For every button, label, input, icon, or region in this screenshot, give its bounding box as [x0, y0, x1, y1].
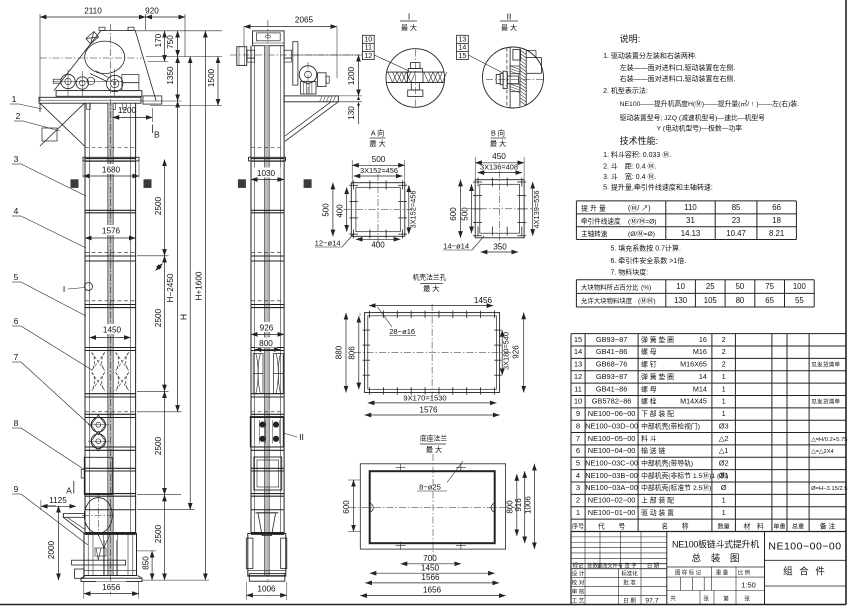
svg-text:2: 2: [16, 111, 21, 121]
svg-text:张: 张: [744, 595, 750, 603]
svg-text:1: 1: [722, 397, 726, 406]
svg-text:66: 66: [772, 203, 781, 212]
svg-text:(ⓂⓂ): (ⓂⓂ): [638, 297, 656, 305]
svg-text:GB93−87: GB93−87: [596, 335, 627, 344]
svg-text:1: 1: [722, 508, 726, 517]
svg-text:H+1600: H+1600: [195, 271, 204, 300]
svg-text:450: 450: [492, 152, 506, 161]
svg-text:NE100−03C−00: NE100−03C−00: [585, 459, 638, 468]
svg-text:1006: 1006: [257, 585, 276, 594]
svg-text:名 称: 名 称: [661, 521, 688, 530]
svg-text:1: 1: [722, 496, 726, 505]
svg-text:10.47: 10.47: [726, 229, 746, 238]
svg-text:12−ø14: 12−ø14: [315, 239, 341, 248]
svg-text:最 大: 最 大: [369, 139, 385, 148]
svg-text:GB41−86: GB41−86: [596, 347, 627, 356]
svg-text:输 送 链: 输 送 链: [641, 446, 665, 455]
svg-text:1450: 1450: [103, 326, 122, 335]
svg-text:II: II: [507, 12, 512, 22]
svg-text:2: 2: [722, 360, 726, 369]
svg-text:7. 物料块度:: 7. 物料块度:: [611, 268, 649, 277]
svg-text:9: 9: [576, 409, 580, 418]
svg-text:2110: 2110: [84, 7, 102, 16]
svg-text:1350: 1350: [166, 66, 175, 85]
svg-text:△=H/0.2+5.75: △=H/0.2+5.75: [811, 437, 847, 443]
svg-text:7: 7: [14, 352, 19, 362]
svg-text:Ø3: Ø3: [719, 421, 729, 430]
svg-text:9X170=1530: 9X170=1530: [403, 393, 446, 402]
svg-text:400: 400: [335, 204, 344, 218]
svg-text:2500: 2500: [154, 436, 163, 455]
svg-text:1: 1: [722, 384, 726, 393]
svg-text:3X152=456: 3X152=456: [360, 166, 398, 175]
svg-text:1. 驱动装置分左装和右装两种.: 1. 驱动装置分左装和右装两种.: [603, 51, 697, 60]
svg-text:400: 400: [371, 241, 385, 250]
svg-text:备 注: 备 注: [820, 521, 836, 530]
svg-text:Ø=H−3.15/2.5: Ø=H−3.15/2.5: [811, 486, 847, 492]
svg-text:5: 5: [576, 459, 580, 468]
svg-text:弹 簧 垫 圈: 弹 簧 垫 圈: [641, 335, 674, 344]
svg-text:NE100板链斗式提升机: NE100板链斗式提升机: [672, 539, 759, 550]
svg-text:1. 料斗容积: 0.033 Ⓜ.: 1. 料斗容积: 0.033 Ⓜ.: [603, 150, 671, 159]
svg-text:1200: 1200: [118, 106, 137, 115]
svg-text:2: 2: [576, 496, 580, 505]
svg-text:2. 斗 距: 0.4 Ⓜ.: 2. 斗 距: 0.4 Ⓜ.: [603, 163, 656, 171]
svg-text:800: 800: [259, 339, 273, 348]
svg-text:最 大: 最 大: [490, 139, 506, 148]
svg-text:NE100−04−00: NE100−04−00: [588, 446, 636, 455]
svg-text:螺 栓: 螺 栓: [641, 397, 657, 406]
svg-text:55: 55: [795, 296, 804, 305]
svg-text:最 大: 最 大: [401, 23, 417, 32]
svg-text:(%): (%): [641, 284, 651, 291]
svg-text:最 大: 最 大: [423, 284, 439, 293]
svg-text:上 部 装 配: 上 部 装 配: [641, 496, 674, 505]
svg-text:批 准: 批 准: [623, 579, 636, 587]
svg-text:2500: 2500: [154, 524, 163, 543]
svg-text:中部机壳(带导轨): 中部机壳(带导轨): [641, 459, 693, 468]
svg-text:NE100−00−00: NE100−00−00: [768, 541, 841, 553]
svg-text:总重: 总重: [792, 522, 804, 530]
svg-text:底座法兰: 底座法兰: [420, 434, 447, 443]
svg-text:3X152=456: 3X152=456: [409, 190, 418, 228]
svg-text:850: 850: [142, 556, 151, 570]
svg-text:标准化: 标准化: [621, 570, 638, 578]
svg-text:NE100−03A−00: NE100−03A−00: [585, 483, 638, 492]
svg-text:6: 6: [576, 446, 580, 455]
svg-text:数量: 数量: [717, 522, 729, 530]
svg-text:I: I: [408, 12, 410, 22]
svg-text:M16: M16: [693, 347, 707, 356]
svg-text:31: 31: [686, 216, 695, 225]
svg-text:料 斗: 料 斗: [641, 434, 657, 443]
svg-text:螺 母: 螺 母: [641, 347, 657, 356]
svg-text:Ø1: Ø1: [719, 471, 729, 480]
svg-text:1576: 1576: [102, 227, 121, 236]
svg-text:NE100−03D−00: NE100−03D−00: [585, 421, 638, 430]
svg-text:大块物料所占百分比: 大块物料所占百分比: [581, 282, 639, 291]
svg-text:NE100−03B−00: NE100−03B−00: [585, 471, 638, 480]
svg-text:11: 11: [574, 384, 582, 393]
svg-text:4: 4: [14, 206, 19, 216]
svg-text:GB93−87: GB93−87: [596, 372, 627, 381]
svg-text:1: 1: [576, 508, 580, 517]
svg-text:材 料: 材 料: [743, 521, 764, 530]
svg-text:弹 簧 垫 圈: 弹 簧 垫 圈: [641, 372, 674, 381]
svg-text:4X139=556: 4X139=556: [532, 190, 541, 228]
svg-text:NE100——提升机高度H(Ⓜ)——提升量(㎥/ ↑ ): NE100——提升机高度H(Ⓜ)——提升量(㎥/ ↑ )——左(右)装.: [620, 99, 799, 108]
svg-text:GB68−76: GB68−76: [596, 360, 627, 369]
svg-text:M14: M14: [693, 384, 707, 393]
svg-text:图 样 标 记: 图 样 标 记: [675, 569, 702, 577]
svg-text:△=△2X4: △=△2X4: [811, 449, 834, 455]
svg-text:见发货清单: 见发货清单: [811, 398, 840, 406]
svg-text:130: 130: [347, 106, 356, 120]
svg-text:28−ø16: 28−ø16: [389, 327, 415, 336]
svg-text:1450: 1450: [421, 563, 440, 572]
svg-text:工 艺: 工 艺: [572, 598, 585, 605]
svg-text:单重: 单重: [773, 522, 785, 530]
svg-text:NE100−01−00: NE100−01−00: [588, 508, 636, 517]
svg-text:105: 105: [704, 296, 718, 305]
svg-text:△2: △2: [719, 434, 729, 443]
svg-text:组 合 件: 组 合 件: [783, 566, 827, 578]
svg-text:350: 350: [493, 243, 507, 252]
svg-text:II: II: [299, 432, 304, 442]
svg-text:H: H: [178, 314, 188, 320]
svg-text:10: 10: [574, 397, 582, 406]
svg-text:130: 130: [674, 296, 688, 305]
svg-text:技术性能:: 技术性能:: [620, 135, 659, 146]
svg-text:第: 第: [723, 595, 729, 603]
svg-text:(Ⓜ/Ⓜ=Ø): (Ⓜ/Ⓜ=Ø): [628, 218, 656, 226]
svg-text:5. 填充系数按 0.7计算.: 5. 填充系数按 0.7计算.: [611, 244, 681, 253]
svg-text:M16X65: M16X65: [680, 360, 707, 369]
svg-text:8: 8: [14, 418, 19, 428]
svg-text:1:50: 1:50: [741, 581, 756, 590]
svg-text:80: 80: [736, 296, 745, 305]
svg-text:4: 4: [576, 471, 580, 480]
svg-text:100: 100: [793, 282, 807, 291]
svg-text:700: 700: [423, 554, 437, 563]
svg-text:926: 926: [260, 324, 274, 333]
svg-text:8−ø25: 8−ø25: [419, 483, 441, 492]
svg-text:总 装 图: 总 装 图: [692, 553, 740, 565]
svg-text:1200: 1200: [347, 66, 356, 85]
svg-text:25: 25: [706, 282, 715, 291]
svg-text:中部机壳(带检视门): 中部机壳(带检视门): [641, 421, 700, 430]
svg-text:Ø: Ø: [721, 483, 727, 492]
svg-text:驱 动 装 置: 驱 动 装 置: [641, 508, 674, 517]
svg-text:螺 母: 螺 母: [641, 384, 657, 393]
svg-text:B: B: [154, 130, 160, 140]
svg-text:右装——面对进料口,驱动装置在右侧.: 右装——面对进料口,驱动装置在右侧.: [620, 74, 736, 83]
svg-text:Y (电动机型号)—极数—功率: Y (电动机型号)—极数—功率: [657, 124, 743, 133]
svg-text:14−ø14: 14−ø14: [443, 242, 469, 251]
svg-text:2065: 2065: [295, 16, 314, 25]
svg-text:110: 110: [684, 203, 697, 212]
svg-text:2: 2: [722, 347, 726, 356]
svg-text:NE100−06−00: NE100−06−00: [588, 409, 636, 418]
svg-text:共: 共: [670, 595, 676, 603]
svg-text:H−2450: H−2450: [166, 273, 175, 302]
svg-text:GB41−86: GB41−86: [596, 384, 627, 393]
svg-text:14: 14: [699, 372, 707, 381]
svg-text:机壳法兰孔: 机壳法兰孔: [413, 273, 447, 282]
svg-text:750: 750: [166, 35, 175, 49]
svg-text:提 升 量: 提 升 量: [581, 204, 606, 213]
svg-text:1656: 1656: [423, 586, 442, 595]
svg-text:600: 600: [342, 500, 351, 514]
svg-text:6: 6: [14, 316, 19, 326]
svg-text:500: 500: [460, 207, 469, 221]
svg-text:NE100−02−00: NE100−02−00: [588, 496, 636, 505]
svg-text:日 期: 日 期: [623, 598, 636, 605]
svg-text:600: 600: [449, 207, 458, 221]
svg-text:3: 3: [14, 154, 19, 164]
svg-text:12: 12: [364, 51, 372, 60]
svg-text:8.21: 8.21: [769, 229, 784, 238]
svg-text:1125: 1125: [49, 496, 67, 505]
svg-text:5: 5: [14, 272, 19, 282]
svg-text:800: 800: [505, 500, 514, 514]
svg-text:审 核: 审 核: [572, 588, 585, 596]
svg-text:1656: 1656: [102, 583, 121, 592]
svg-text:GB5782−86: GB5782−86: [592, 397, 632, 406]
svg-text:170: 170: [154, 33, 163, 47]
svg-text:代 号: 代 号: [598, 521, 625, 530]
svg-text:1: 1: [12, 94, 17, 104]
svg-text:中部机壳(非标节 1.5Ⓜ)1 (Ⓜ): 中部机壳(非标节 1.5Ⓜ)1 (Ⓜ): [641, 471, 728, 480]
svg-text:左装——面对进料口,驱动装置在左侧.: 左装——面对进料口,驱动装置在左侧.: [620, 63, 736, 72]
svg-text:设 计: 设 计: [572, 570, 585, 578]
svg-text:14: 14: [574, 347, 582, 356]
svg-text:12: 12: [574, 372, 582, 381]
svg-text:比 例: 比 例: [738, 569, 750, 577]
svg-text:75: 75: [765, 282, 774, 291]
svg-text:NE100−05−00: NE100−05−00: [588, 434, 636, 443]
svg-text:1576: 1576: [419, 405, 438, 414]
svg-text:97.7: 97.7: [645, 598, 658, 605]
svg-text:2500: 2500: [154, 196, 163, 215]
svg-text:2: 2: [722, 335, 726, 344]
svg-text:14.13: 14.13: [681, 229, 701, 238]
svg-text:7: 7: [576, 434, 580, 443]
svg-text:允许大块物料块度: 允许大块物料块度: [581, 296, 633, 305]
svg-text:2. 机型表示法:: 2. 机型表示法:: [603, 86, 648, 95]
svg-text:(Ø/Ⓜ=Ø): (Ø/Ⓜ=Ø): [628, 230, 655, 238]
svg-text:中部机壳(标准节 2.5Ⓜ): 中部机壳(标准节 2.5Ⓜ): [641, 483, 711, 492]
svg-text:重 量: 重 量: [716, 569, 729, 577]
svg-text:张: 张: [703, 595, 709, 603]
svg-text:500: 500: [372, 155, 386, 164]
svg-text:85: 85: [732, 203, 741, 212]
svg-text:806: 806: [347, 346, 356, 360]
svg-text:2000: 2000: [47, 540, 56, 559]
svg-text:B 向: B 向: [491, 129, 505, 138]
svg-text:18: 18: [772, 216, 781, 225]
svg-text:500: 500: [321, 203, 330, 217]
svg-text:说明:: 说明:: [620, 33, 641, 44]
svg-text:I: I: [63, 284, 65, 294]
svg-text:见发货清单: 见发货清单: [811, 361, 840, 369]
svg-text:8: 8: [576, 421, 580, 430]
svg-text:15: 15: [458, 51, 466, 60]
svg-text:2500: 2500: [154, 308, 163, 327]
svg-text:M14X45: M14X45: [680, 397, 707, 406]
svg-text:螺 钉: 螺 钉: [641, 360, 657, 369]
svg-text:15: 15: [574, 335, 582, 344]
svg-text:1: 1: [722, 409, 726, 418]
svg-text:926: 926: [512, 345, 521, 359]
svg-text:下 部 装 配: 下 部 装 配: [641, 409, 674, 418]
svg-text:Ø2: Ø2: [719, 459, 729, 468]
svg-text:3: 3: [576, 483, 580, 492]
svg-text:23: 23: [732, 216, 741, 225]
svg-text:校 对: 校 对: [572, 579, 585, 587]
svg-text:牵引件线速度: 牵引件线速度: [581, 217, 621, 226]
svg-text:880: 880: [335, 345, 344, 359]
svg-text:6. 牵引件安全系数 >1倍.: 6. 牵引件安全系数 >1倍.: [611, 256, 687, 265]
svg-text:1566: 1566: [421, 573, 440, 582]
svg-text:1006: 1006: [524, 496, 533, 514]
svg-text:1030: 1030: [257, 169, 276, 178]
svg-text:最 大: 最 大: [426, 445, 442, 454]
svg-text:3. 斗 宽: 0.4 Ⓜ.: 3. 斗 宽: 0.4 Ⓜ.: [603, 172, 656, 181]
svg-text:驱动装置型号; JZQ (减速机型号)—速比—机型号: 驱动装置型号; JZQ (减速机型号)—速比—机型号: [620, 113, 766, 122]
svg-text:1456: 1456: [474, 296, 493, 305]
svg-text:13: 13: [574, 360, 582, 369]
svg-text:1: 1: [722, 372, 726, 381]
svg-text:920: 920: [145, 7, 159, 16]
svg-text:(Ⓜ/ ↗): (Ⓜ/ ↗): [628, 205, 651, 213]
svg-text:10: 10: [676, 282, 685, 291]
svg-text:3X136=408: 3X136=408: [480, 162, 518, 171]
svg-text:A: A: [66, 486, 72, 496]
svg-text:65: 65: [765, 296, 774, 305]
svg-text:9: 9: [14, 484, 19, 494]
svg-text:△1: △1: [719, 446, 729, 455]
svg-text:A 向: A 向: [371, 129, 385, 138]
svg-text:50: 50: [736, 282, 745, 291]
svg-text:序号: 序号: [572, 522, 584, 530]
svg-text:主轴转速: 主轴转速: [581, 229, 608, 238]
svg-text:3X180=540: 3X180=540: [501, 332, 510, 370]
svg-text:916: 916: [514, 498, 523, 512]
svg-text:1680: 1680: [102, 166, 121, 175]
svg-text:最 大: 最 大: [501, 23, 517, 32]
svg-text:5. 提升量,牵引件线速度和主轴转速:: 5. 提升量,牵引件线速度和主轴转速:: [603, 183, 713, 192]
svg-text:16: 16: [699, 335, 707, 344]
svg-text:1500: 1500: [207, 68, 216, 87]
